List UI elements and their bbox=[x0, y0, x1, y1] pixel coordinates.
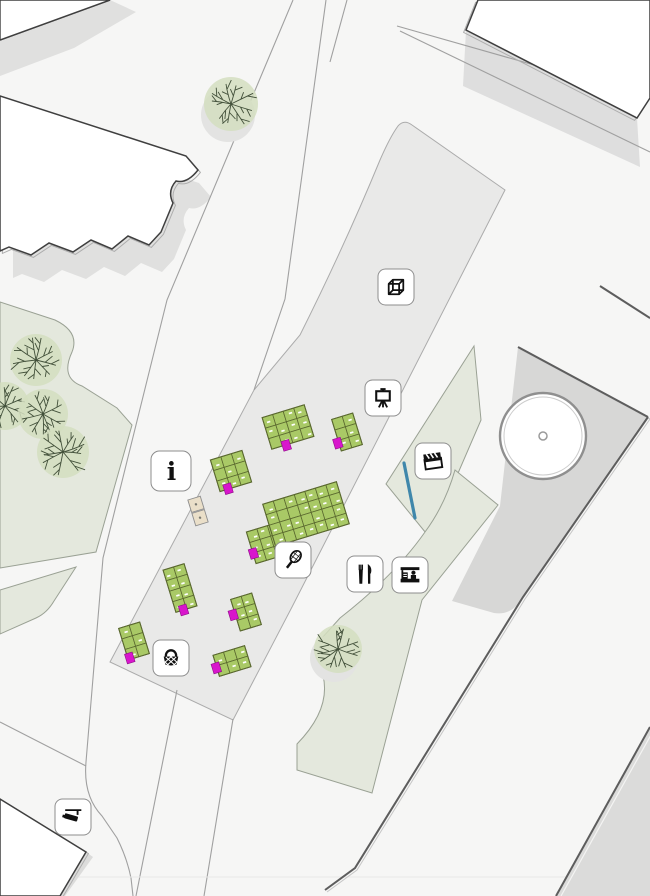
cutlery-icon[interactable] bbox=[347, 556, 384, 593]
tree bbox=[204, 77, 258, 131]
site-plan-map: i bbox=[0, 0, 650, 896]
map-canvas bbox=[0, 0, 650, 896]
fountain bbox=[500, 393, 586, 479]
cctv-camera-icon[interactable] bbox=[55, 799, 92, 836]
tennis-racket-icon[interactable] bbox=[275, 542, 312, 579]
tree bbox=[37, 426, 89, 478]
easel-icon[interactable] bbox=[365, 380, 402, 417]
clapperboard-icon[interactable] bbox=[415, 443, 452, 480]
market-stall-icon[interactable] bbox=[392, 557, 429, 594]
tree bbox=[314, 625, 362, 673]
info-letter: i bbox=[166, 458, 175, 484]
tree bbox=[10, 334, 62, 386]
fountain-center bbox=[539, 432, 547, 440]
picnic-basket-icon[interactable] bbox=[153, 640, 190, 677]
cube-icon[interactable] bbox=[378, 269, 415, 306]
info-icon[interactable]: i bbox=[151, 451, 192, 492]
